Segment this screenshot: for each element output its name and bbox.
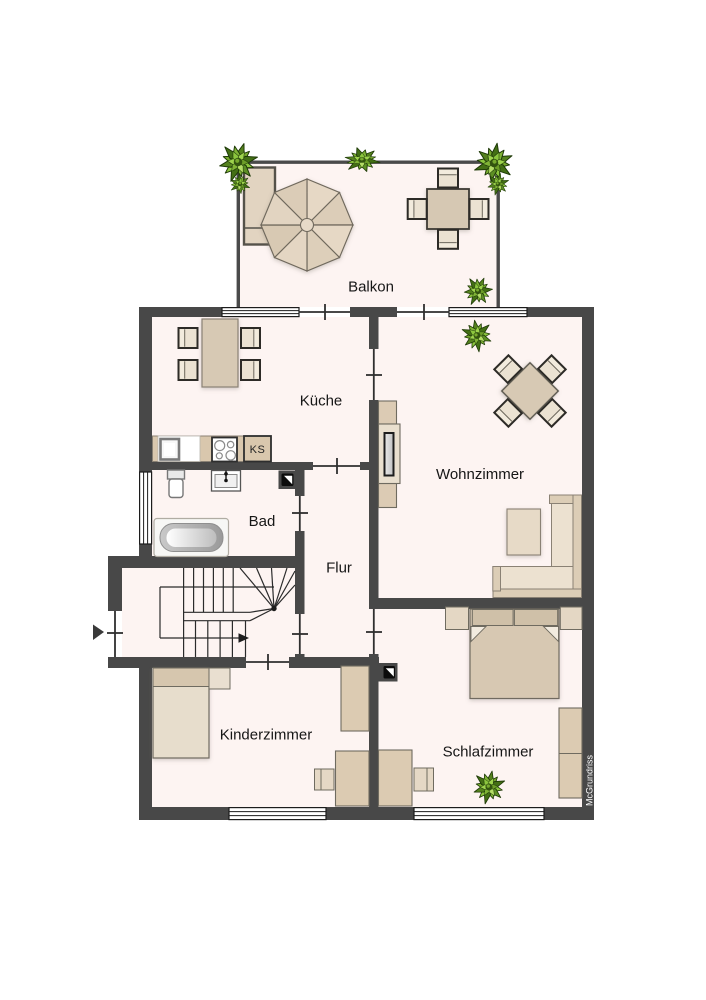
- svg-text:Schlafzimmer: Schlafzimmer: [443, 744, 534, 761]
- svg-text:Wohnzimmer: Wohnzimmer: [436, 466, 524, 483]
- svg-text:Flur: Flur: [326, 560, 352, 577]
- svg-text:Bad: Bad: [249, 513, 276, 530]
- svg-text:Kinderzimmer: Kinderzimmer: [220, 727, 313, 744]
- svg-text:Balkon: Balkon: [348, 279, 394, 296]
- svg-text:KS: KS: [250, 444, 266, 456]
- svg-text:McGrundriss: McGrundriss: [585, 754, 595, 806]
- svg-text:Küche: Küche: [300, 393, 343, 410]
